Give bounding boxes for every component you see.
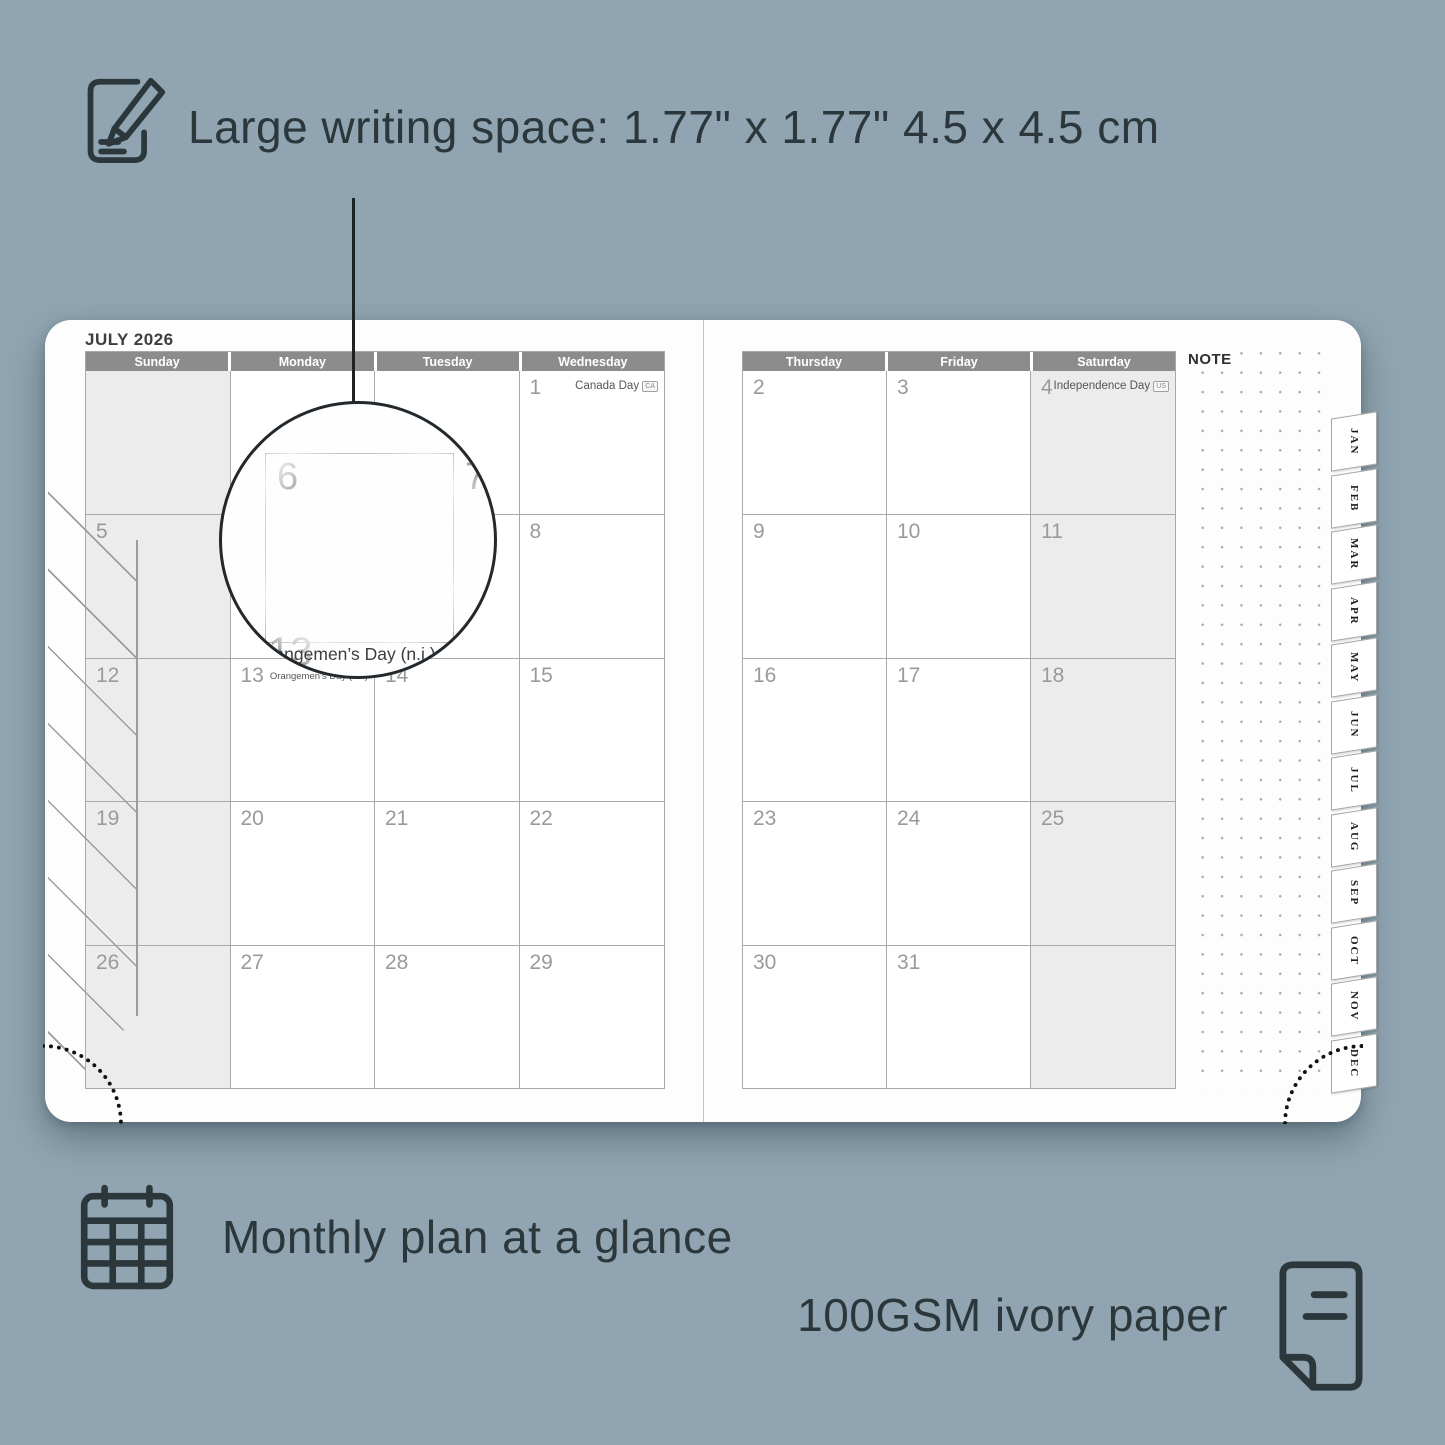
magnified-day-number: 6 <box>277 456 298 499</box>
calendar-cell: 20 <box>231 801 376 944</box>
day-header: Saturday <box>1033 352 1175 371</box>
calendar-cell: 15 <box>520 658 665 801</box>
magnifier-pointer-line <box>352 198 355 404</box>
calendar-cell: 16 <box>743 658 887 801</box>
note-dot-grid: NOTE <box>1186 351 1332 1089</box>
calendar-cell: 18 <box>1031 658 1175 801</box>
day-number: 15 <box>530 664 553 688</box>
month-tab-label: APR <box>1348 597 1360 626</box>
calendar-cell <box>1031 945 1175 1088</box>
day-number: 25 <box>1041 807 1064 831</box>
day-number: 11 <box>1041 520 1063 544</box>
pencil-note-icon <box>80 66 168 177</box>
month-tab-jul: JUL <box>1331 750 1377 810</box>
month-tab-jan: JAN <box>1331 411 1377 471</box>
month-tab-jun: JUN <box>1331 694 1377 754</box>
day-number: 1 <box>530 376 542 400</box>
note-label: NOTE <box>1186 350 1237 369</box>
month-tab-may: MAY <box>1331 637 1377 697</box>
calendar-cell: 1Canada Day CA <box>520 371 665 514</box>
day-number: 2 <box>753 376 765 400</box>
calendar-cell: 17 <box>887 658 1031 801</box>
day-header: Wednesday <box>522 352 664 371</box>
holiday-country-badge: US <box>1153 381 1169 392</box>
day-number: 9 <box>753 520 765 544</box>
calendar-cell: 30 <box>743 945 887 1088</box>
corner-stitch-left <box>43 1032 163 1124</box>
day-number: 13 <box>241 664 264 688</box>
calendar-cell: 24 <box>887 801 1031 944</box>
month-tab-mar: MAR <box>1331 524 1377 584</box>
month-tab-label: JAN <box>1348 428 1360 455</box>
day-number: 24 <box>897 807 920 831</box>
day-number: 16 <box>753 664 776 688</box>
calendar-cell: 14 <box>375 658 520 801</box>
day-header: Tuesday <box>377 352 519 371</box>
calendar-cell: 10 <box>887 514 1031 657</box>
month-tab-label: MAY <box>1348 652 1360 683</box>
day-header: Sunday <box>86 352 228 371</box>
day-number: 27 <box>241 951 264 975</box>
day-number: 31 <box>897 951 920 975</box>
calendar-icon <box>78 1184 176 1297</box>
month-tab-apr: APR <box>1331 581 1377 641</box>
month-tab-label: AUG <box>1348 822 1360 852</box>
calendar-cell: 28 <box>375 945 520 1088</box>
holiday-country-badge: CA <box>642 381 658 392</box>
left-edge-tab-hatching <box>48 448 138 1108</box>
month-tab-label: SEP <box>1348 880 1360 906</box>
calendar-cell: 8 <box>520 514 665 657</box>
calendar-cell: 9 <box>743 514 887 657</box>
calendar-cell <box>86 371 231 514</box>
calendar-cell: 13Orangemen’s Day (n.i.) UK <box>231 658 376 801</box>
holiday-label: Canada Day CA <box>575 380 658 392</box>
day-number: 18 <box>1041 664 1064 688</box>
calendar-cell: 27 <box>231 945 376 1088</box>
calendar-cell: 31 <box>887 945 1031 1088</box>
calendar-cell: 21 <box>375 801 520 944</box>
day-number: 10 <box>897 520 920 544</box>
day-number: 4 <box>1041 376 1053 400</box>
holiday-label: Independence Day US <box>1054 380 1169 392</box>
day-number: 17 <box>897 664 920 688</box>
calendar-cell: 2 <box>743 371 887 514</box>
corner-stitch-right <box>1243 1032 1363 1124</box>
day-number: 29 <box>530 951 553 975</box>
calendar-cell: 29 <box>520 945 665 1088</box>
month-tab-label: MAR <box>1348 538 1360 570</box>
page-spine <box>703 320 704 1122</box>
calendar-cell: 25 <box>1031 801 1175 944</box>
calendar-cell: 4Independence Day US <box>1031 371 1175 514</box>
paper-caption: 100GSM ivory paper <box>797 1288 1228 1342</box>
day-number: 20 <box>241 807 264 831</box>
calendar-cell: 11 <box>1031 514 1175 657</box>
day-header: Thursday <box>743 352 885 371</box>
day-number: 8 <box>530 520 542 544</box>
month-tab-nov: NOV <box>1331 976 1377 1036</box>
paper-icon <box>1272 1256 1370 1401</box>
month-tab-aug: AUG <box>1331 807 1377 867</box>
month-tab-label: OCT <box>1348 935 1360 965</box>
calendar-grid-right: ThursdayFridaySaturday234Independence Da… <box>742 351 1176 1089</box>
day-header: Friday <box>888 352 1030 371</box>
product-image: Large writing space: 1.77" x 1.77" 4.5 x… <box>0 0 1445 1445</box>
month-tab-sep: SEP <box>1331 863 1377 923</box>
day-number: 22 <box>530 807 553 831</box>
month-tab-label: NOV <box>1348 991 1360 1021</box>
magnified-holiday-country-badge: UK <box>440 648 461 662</box>
magnified-next-day-number: 7 <box>465 456 486 499</box>
day-number: 3 <box>897 376 909 400</box>
month-tab-label: JUN <box>1348 710 1360 737</box>
month-title: JULY 2026 <box>85 330 174 350</box>
month-tab-oct: OCT <box>1331 920 1377 980</box>
day-number: 23 <box>753 807 776 831</box>
magnified-holiday-label: Orangemen’s Day (n.i.) UK <box>222 644 494 665</box>
day-number: 21 <box>385 807 408 831</box>
calendar-cell: 23 <box>743 801 887 944</box>
month-tab-label: JUL <box>1348 767 1360 794</box>
month-tab-feb: FEB <box>1331 468 1377 528</box>
calendar-cell: 22 <box>520 801 665 944</box>
monthly-plan-caption: Monthly plan at a glance <box>222 1210 733 1264</box>
day-number: 30 <box>753 951 776 975</box>
calendar-cell: 3 <box>887 371 1031 514</box>
month-tab-label: FEB <box>1348 484 1360 511</box>
magnified-holiday-text: Orangemen’s Day (n.i.) <box>255 644 436 664</box>
writing-space-caption: Large writing space: 1.77" x 1.77" 4.5 x… <box>188 100 1160 154</box>
day-number: 28 <box>385 951 408 975</box>
planner-page: JULY 2026 SundayMondayTuesdayWednesday1C… <box>45 320 1361 1122</box>
magnifier-circle: 6 7 13 Orangemen’s Day (n.i.) UK <box>219 401 497 679</box>
